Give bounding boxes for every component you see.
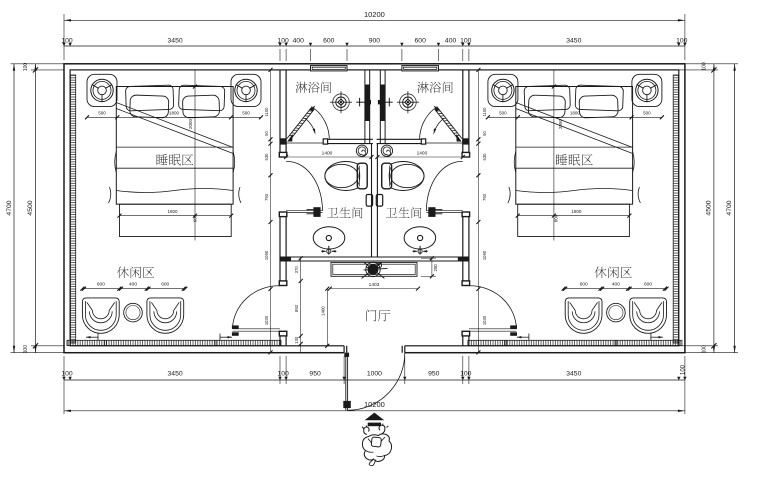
svg-text:1090: 1090 — [482, 250, 487, 260]
svg-text:3450: 3450 — [168, 37, 183, 44]
svg-text:1800: 1800 — [167, 209, 178, 214]
svg-text:100: 100 — [676, 37, 688, 44]
svg-text:3450: 3450 — [566, 37, 581, 44]
svg-text:500: 500 — [242, 110, 250, 115]
svg-text:1100: 1100 — [264, 107, 269, 117]
svg-text:793: 793 — [264, 193, 269, 201]
svg-text:600: 600 — [161, 282, 169, 288]
svg-text:400: 400 — [445, 37, 457, 44]
svg-text:4700: 4700 — [6, 200, 13, 215]
svg-text:1000: 1000 — [367, 371, 382, 378]
svg-text:4700: 4700 — [726, 200, 733, 215]
svg-text:100: 100 — [277, 371, 289, 378]
svg-text:250: 250 — [433, 264, 438, 272]
svg-text:400: 400 — [129, 282, 137, 288]
svg-text:500: 500 — [643, 110, 651, 115]
svg-text:100: 100 — [277, 37, 289, 44]
svg-text:100: 100 — [460, 371, 472, 378]
svg-text:370: 370 — [294, 266, 299, 274]
svg-text:600: 600 — [580, 282, 588, 288]
svg-text:900: 900 — [369, 37, 381, 44]
svg-text:1400: 1400 — [321, 306, 326, 316]
svg-text:3450: 3450 — [566, 371, 581, 378]
svg-text:600: 600 — [415, 37, 427, 44]
svg-text:1400: 1400 — [322, 150, 333, 156]
svg-text:2050: 2050 — [558, 118, 563, 129]
svg-text:130: 130 — [294, 336, 299, 344]
svg-text:1403: 1403 — [369, 282, 380, 288]
svg-text:1030: 1030 — [482, 315, 487, 325]
svg-text:50: 50 — [264, 131, 269, 136]
svg-text:530: 530 — [482, 153, 487, 161]
svg-text:400: 400 — [293, 37, 305, 44]
svg-text:500: 500 — [98, 110, 106, 115]
svg-text:4500: 4500 — [706, 200, 713, 215]
svg-text:100: 100 — [61, 371, 73, 378]
svg-text:400: 400 — [612, 282, 620, 288]
svg-text:1030: 1030 — [264, 315, 269, 325]
svg-text:2050: 2050 — [188, 118, 193, 129]
svg-text:950: 950 — [428, 371, 440, 378]
svg-text:100: 100 — [23, 345, 29, 354]
svg-text:600: 600 — [644, 282, 652, 288]
svg-text:1400: 1400 — [417, 150, 428, 156]
svg-text:1800: 1800 — [570, 110, 581, 115]
svg-text:500: 500 — [499, 110, 507, 115]
svg-text:100: 100 — [701, 62, 707, 71]
svg-text:1100: 1100 — [482, 107, 487, 117]
svg-text:10200: 10200 — [364, 10, 385, 19]
svg-text:530: 530 — [264, 153, 269, 161]
svg-text:100: 100 — [61, 37, 73, 44]
svg-text:600: 600 — [97, 282, 105, 288]
svg-text:1800: 1800 — [169, 110, 180, 115]
svg-text:893: 893 — [294, 304, 299, 312]
svg-text:1800: 1800 — [571, 209, 582, 214]
svg-text:4500: 4500 — [27, 200, 34, 215]
svg-text:10200: 10200 — [364, 400, 385, 409]
svg-text:50: 50 — [482, 131, 487, 136]
svg-text:793: 793 — [482, 193, 487, 201]
svg-text:950: 950 — [309, 371, 321, 378]
svg-text:100: 100 — [460, 37, 472, 44]
svg-text:1090: 1090 — [264, 250, 269, 260]
svg-text:100: 100 — [681, 364, 687, 375]
svg-text:3450: 3450 — [168, 371, 183, 378]
svg-text:600: 600 — [323, 37, 335, 44]
